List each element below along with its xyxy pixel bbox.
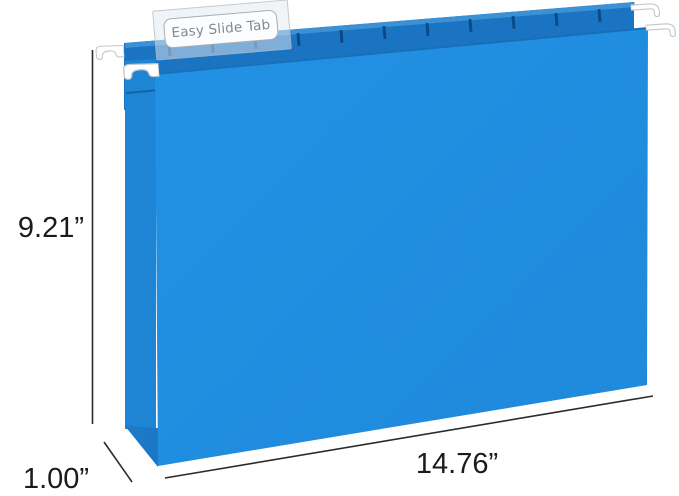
depth-dimension-line	[104, 442, 132, 482]
width-dimension-label: 14.76”	[398, 448, 516, 481]
product-image-hanging-file-folder: Easy Slide Tab 9.21” 1.00” 14.76”	[0, 0, 679, 496]
dimension-lines	[0, 0, 679, 496]
height-dimension-label: 9.21”	[0, 212, 84, 245]
depth-dimension-label: 1.00”	[12, 463, 100, 496]
